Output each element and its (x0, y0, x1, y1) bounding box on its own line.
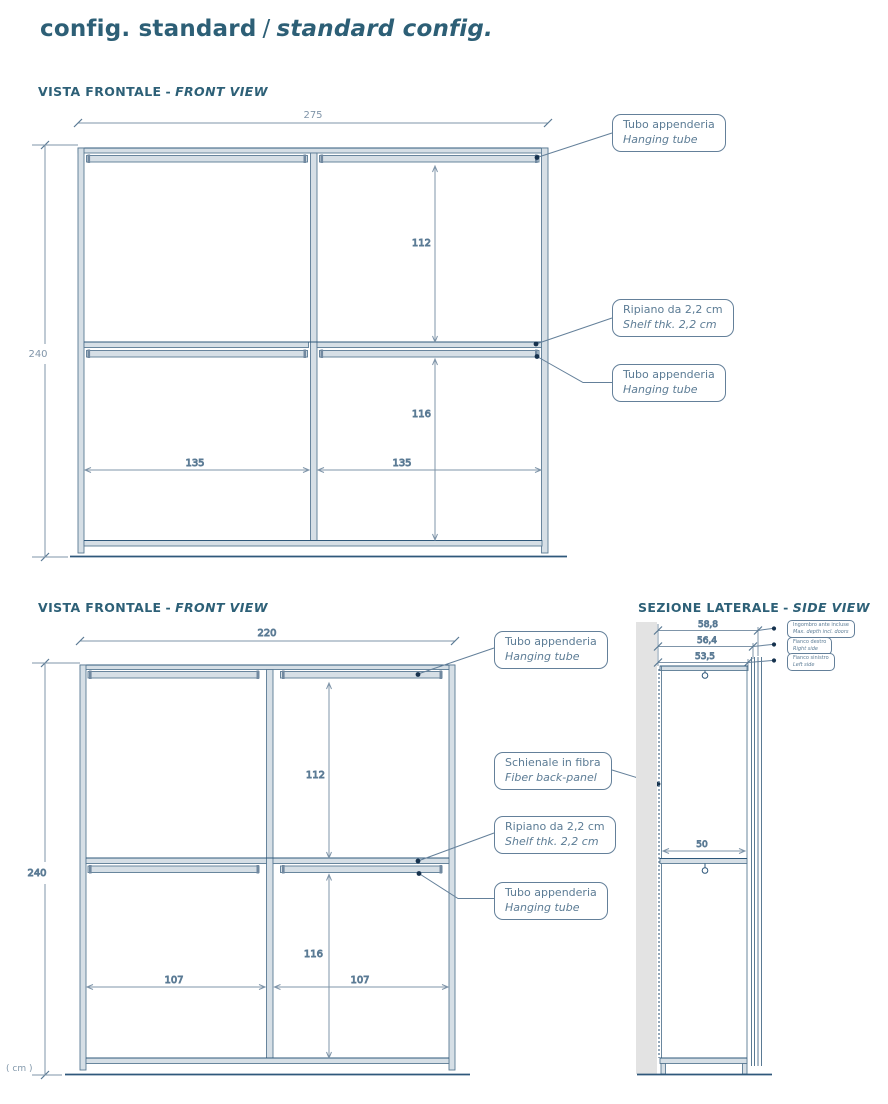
callout-text-en: Max. depth incl. doors (793, 629, 849, 636)
page-title: config. standard/standard config. (40, 16, 493, 42)
sv-doors (752, 657, 762, 1066)
page-title-en: standard config. (276, 16, 492, 42)
callout-text-en: Hanging tube (623, 383, 715, 398)
drawing-canvas: 275 240 (0, 0, 888, 1104)
fv1-dim-bay-left-text: 135 (185, 458, 204, 469)
sv-callout-dots (772, 626, 776, 662)
fv2-dim-lower-text: 116 (304, 949, 323, 960)
front-view-1-heading: VISTA FRONTALE-FRONT VIEW (38, 84, 268, 99)
fv2-dim-bay-left-text: 107 (164, 975, 183, 986)
callout-text-it: Tubo appenderia (623, 368, 715, 383)
callout-text-it: Fianco sinistro (793, 655, 829, 662)
front-view-1-heading-it: VISTA FRONTALE (38, 84, 162, 99)
fv1-dim-height-text: 240 (28, 349, 47, 360)
fv1-callout-dots (534, 155, 540, 359)
side-view-heading-it: SEZIONE LATERALE (638, 600, 779, 615)
callout-text-it: Tubo appenderia (505, 635, 597, 650)
fv2-dim-width-text: 220 (257, 628, 276, 639)
side-view-drawing: 58,8 56,4 53,5 (636, 620, 776, 1075)
front-view-1-heading-en: FRONT VIEW (175, 84, 268, 99)
fv1-dim-upper-text: 112 (412, 238, 431, 249)
callout-text-en: Fiber back-panel (505, 771, 601, 786)
callout-fv2-hanging-tube-mid: Tubo appenderia Hanging tube (494, 882, 608, 920)
callout-fv1-hanging-tube-mid: Tubo appenderia Hanging tube (612, 364, 726, 402)
callout-text-en: Shelf thk. 2,2 cm (623, 318, 723, 333)
callout-sv-depth-doors: Ingombro ante incluse Max. depth incl. d… (787, 620, 855, 638)
page-title-it: config. standard (40, 16, 256, 42)
callout-fv1-shelf: Ripiano da 2,2 cm Shelf thk. 2,2 cm (612, 299, 734, 337)
fv2-frame (80, 665, 455, 1070)
technical-sheet: 275 240 (0, 0, 888, 1104)
callout-text-it: Ripiano da 2,2 cm (505, 820, 605, 835)
sv-dim-depth-right-text: 56,4 (697, 636, 717, 646)
fv2-dim-upper-text: 112 (306, 770, 325, 781)
fv2-dim-bay-right-text: 107 (350, 975, 369, 986)
front-view-1-drawing: 275 240 (28, 110, 612, 561)
callout-text-it: Tubo appenderia (623, 118, 715, 133)
callout-fv2-shelf: Ripiano da 2,2 cm Shelf thk. 2,2 cm (494, 816, 616, 854)
fv1-dim-lower-text: 116 (412, 409, 431, 420)
unit-note: ( cm ) (6, 1064, 32, 1074)
front-view-2-heading-it: VISTA FRONTALE (38, 600, 162, 615)
callout-text-it: Ripiano da 2,2 cm (623, 303, 723, 318)
callout-sv-left-side: Fianco sinistro Left side (787, 653, 835, 671)
front-view-1-heading-sep: - (162, 84, 176, 99)
sv-dim-depth-left-text: 53,5 (695, 652, 715, 662)
sv-dim-depth-doors-text: 58,8 (698, 620, 718, 630)
front-view-2-heading: VISTA FRONTALE-FRONT VIEW (38, 600, 268, 615)
callout-fv2-back-panel: Schienale in fibra Fiber back-panel (494, 752, 612, 790)
sv-dim-shelf-depth-text: 50 (696, 840, 708, 850)
callout-text-en: Right side (793, 646, 826, 653)
front-view-2-heading-sep: - (162, 600, 176, 615)
callout-text-it: Schienale in fibra (505, 756, 601, 771)
callout-text-en: Hanging tube (505, 901, 597, 916)
wall-band (636, 622, 657, 1074)
callout-fv1-hanging-tube-top: Tubo appenderia Hanging tube (612, 114, 726, 152)
callout-text-en: Hanging tube (505, 650, 597, 665)
side-view-heading-en: SIDE VIEW (793, 600, 870, 615)
fv2-dim-height-text: 240 (27, 868, 46, 879)
side-view-heading: SEZIONE LATERALE-SIDE VIEW (638, 600, 870, 615)
callout-fv2-hanging-tube-top: Tubo appenderia Hanging tube (494, 631, 608, 669)
callout-text-en: Left side (793, 662, 829, 669)
callout-text-it: Ingombro ante incluse (793, 622, 849, 629)
callout-text-it: Fianco destro (793, 639, 826, 646)
callout-text-en: Hanging tube (623, 133, 715, 148)
page-title-separator: / (256, 16, 276, 42)
fv1-frame (78, 148, 548, 553)
front-view-2-heading-en: FRONT VIEW (175, 600, 268, 615)
fv1-dim-bay-right-text: 135 (392, 458, 411, 469)
callout-text-en: Shelf thk. 2,2 cm (505, 835, 605, 850)
fv1-dim-width-text: 275 (303, 110, 322, 121)
callout-text-it: Tubo appenderia (505, 886, 597, 901)
side-view-heading-sep: - (779, 600, 793, 615)
